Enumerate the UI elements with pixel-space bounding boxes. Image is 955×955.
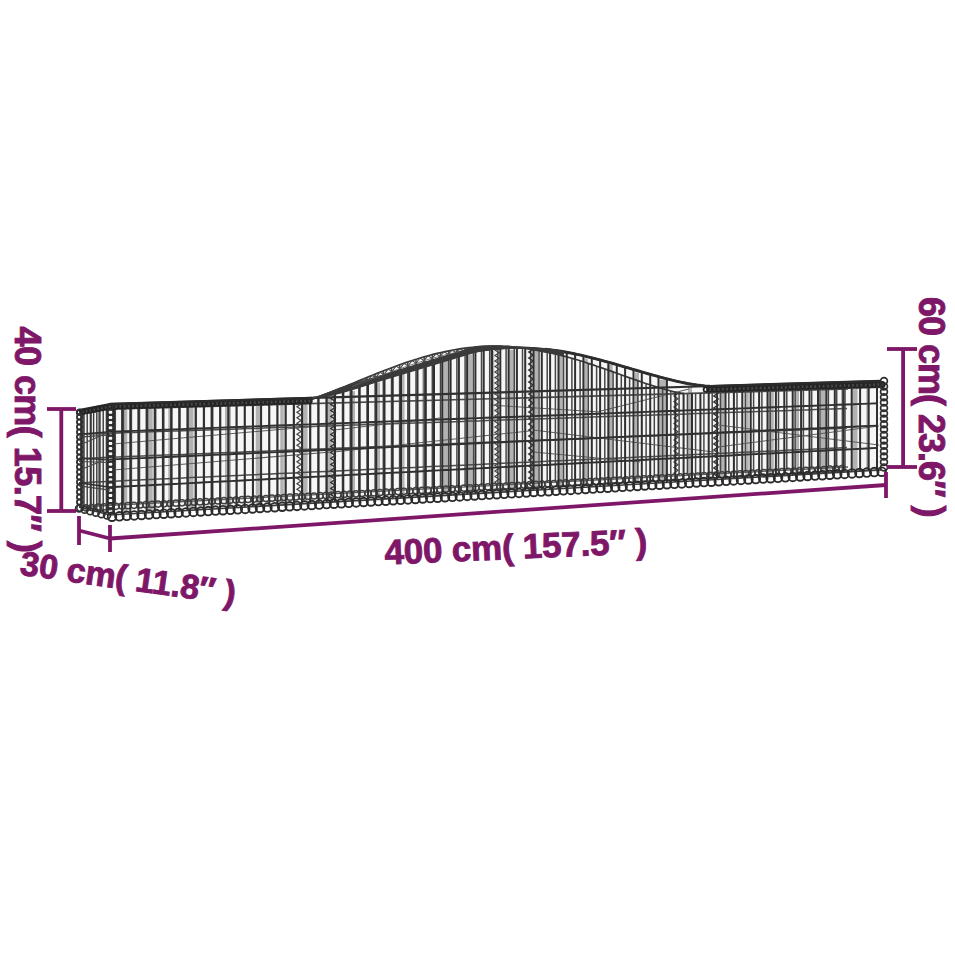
svg-text:30 cm( 11.8″ ): 30 cm( 11.8″ ) bbox=[18, 544, 238, 612]
svg-text:400 cm( 157.5″ ): 400 cm( 157.5″ ) bbox=[384, 521, 648, 571]
svg-text:40 cm( 15.7″ ): 40 cm( 15.7″ ) bbox=[7, 327, 48, 553]
svg-text:60 cm( 23.6″ ): 60 cm( 23.6″ ) bbox=[911, 297, 952, 516]
